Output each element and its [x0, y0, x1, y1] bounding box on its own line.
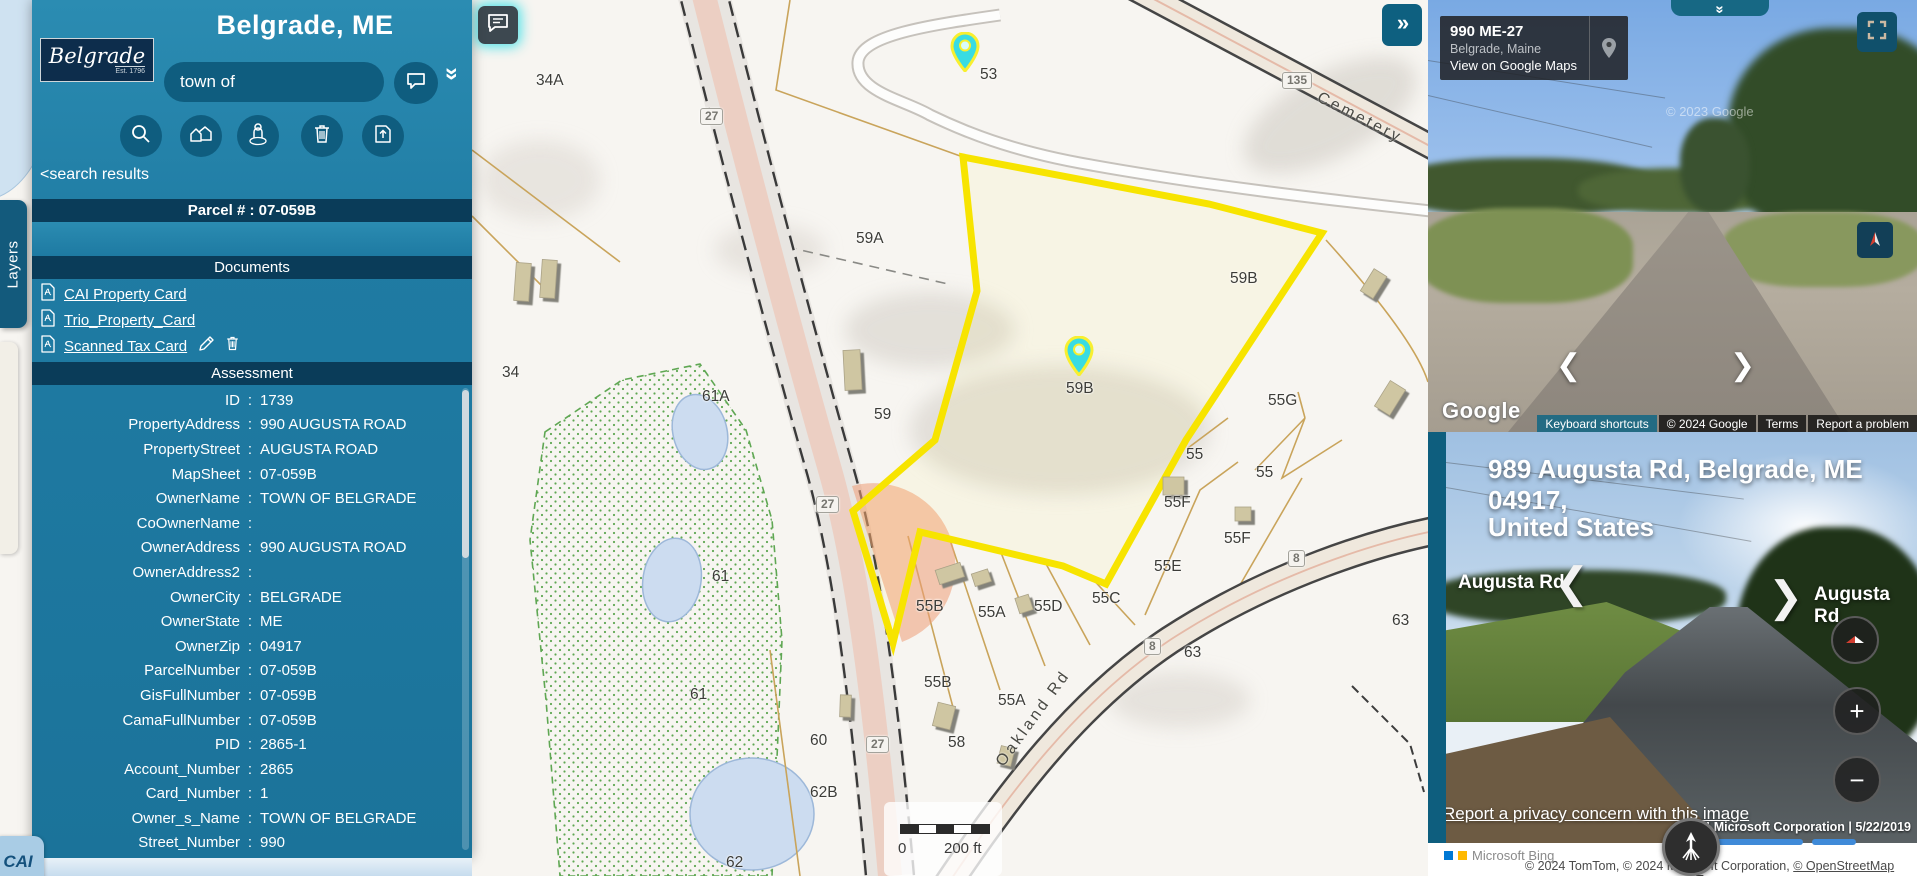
documents-header: Documents: [32, 256, 472, 279]
assessment-table: ID : 1739 PropertyAddress : 990 AUGUSTA …: [32, 388, 460, 855]
assessment-field-label: ID: [32, 392, 240, 409]
terms-link[interactable]: Terms: [1758, 415, 1807, 432]
cai-logo[interactable]: CAI: [0, 836, 44, 876]
abutters-tool-button[interactable]: [237, 115, 279, 157]
assessment-field-value: 07-059B: [260, 662, 460, 679]
assessment-separator: :: [240, 490, 260, 507]
assessment-field-label: GisFullNumber: [32, 687, 240, 704]
assessment-separator: :: [240, 613, 260, 630]
bing-logo-square: [1444, 851, 1453, 860]
assessment-field-label: Owner_s_Name: [32, 810, 240, 827]
assessment-field-value: 07-059B: [260, 712, 460, 729]
assessment-field-label: Account_Number: [32, 761, 240, 778]
parcel-number-label: 55A: [978, 604, 1006, 622]
scale-distance-label: 200 ft: [944, 840, 982, 857]
assessment-field-value: AUGUSTA ROAD: [260, 441, 460, 458]
assessment-field-value: 1: [260, 785, 460, 802]
assessment-field-value: 04917: [260, 638, 460, 655]
parcel-number-label: 59: [874, 406, 891, 424]
scrollbar-segment[interactable]: [1715, 839, 1803, 845]
assessment-separator: :: [240, 441, 260, 458]
sidebar-collapse-button[interactable]: «: [437, 67, 465, 80]
assessment-field-value: 07-059B: [260, 466, 460, 483]
assessment-separator: :: [240, 539, 260, 556]
parcel-number-label: 55D: [1034, 598, 1062, 616]
assessment-field-value: TOWN OF BELGRADE: [260, 810, 460, 827]
assessment-row: OwnerAddress2 :: [32, 560, 460, 585]
route-shield: 27: [866, 736, 889, 753]
document-link[interactable]: Trio_Property_Card: [64, 312, 195, 329]
trash-icon: [312, 123, 332, 150]
double-chevron-down-icon: »: [1712, 5, 1729, 11]
assessment-separator: :: [240, 392, 260, 409]
assessment-row: PID : 2865-1: [32, 732, 460, 757]
street-view-next-arrow[interactable]: ❯: [1730, 348, 1755, 383]
parcel-number-label: 61A: [702, 388, 730, 406]
road-label-left: Augusta Rd: [1458, 572, 1565, 594]
google-copyright: © 2024 Google: [1659, 415, 1756, 432]
chat-icon: [405, 71, 427, 96]
assessment-separator: :: [240, 761, 260, 778]
assessment-field-label: OwnerName: [32, 490, 240, 507]
town-logo-established: Est. 1796: [115, 66, 145, 75]
parcel-number-label: 63: [1392, 612, 1409, 630]
documents-list: CAI Property Card Trio_Property_Card: [32, 281, 472, 359]
assessment-row: OwnerState : ME: [32, 609, 460, 634]
parcel-number-label: 55C: [1092, 590, 1120, 608]
legend-tab[interactable]: [0, 342, 18, 554]
export-file-icon: [373, 123, 393, 150]
parcel-number-label: 53: [980, 66, 997, 84]
document-link[interactable]: Scanned Tax Card: [64, 338, 187, 355]
assessment-field-value: 990: [260, 834, 460, 851]
assessment-row: Account_Number : 2865: [32, 757, 460, 782]
search-results-sidebar: Belgrade Est. 1796 Belgrade, ME «: [32, 0, 472, 858]
route-shield: 8: [1144, 638, 1161, 655]
search-icon: [130, 123, 152, 150]
view-on-google-maps-link[interactable]: View on Google Maps: [1450, 57, 1589, 74]
assessment-separator: :: [240, 712, 260, 729]
street-view-compass-button[interactable]: [1857, 222, 1893, 258]
town-logo: Belgrade Est. 1796: [40, 38, 154, 82]
route-shield: 8: [1288, 550, 1305, 567]
street-view-bottom-bar: Keyboard shortcuts © 2024 Google Terms R…: [1537, 415, 1917, 432]
assessment-separator: :: [240, 564, 260, 581]
houses-icon: [189, 124, 213, 149]
parcel-number-label: 55B: [916, 598, 944, 616]
panel-expand-button[interactable]: »: [1382, 4, 1422, 46]
feedback-button[interactable]: [394, 62, 438, 104]
tree-silhouette: [1728, 28, 1917, 243]
assessment-field-label: CamaFullNumber: [32, 712, 240, 729]
route-shield: 27: [816, 496, 839, 513]
assessment-separator: :: [240, 466, 260, 483]
back-to-search-results-link[interactable]: <search results: [40, 166, 149, 184]
map-pin-icon[interactable]: [1064, 336, 1094, 376]
streetside-next-arrow[interactable]: ❯: [1768, 572, 1803, 621]
assessment-separator: :: [240, 416, 260, 433]
assessment-row: Owner_s_Name : TOWN OF BELGRADE: [32, 806, 460, 831]
pdf-icon: [40, 283, 56, 306]
page-title: Belgrade, ME: [160, 10, 450, 41]
zoom-out-button[interactable]: −: [1833, 756, 1881, 804]
assessment-separator: :: [240, 834, 260, 851]
street-view-prev-arrow[interactable]: ❮: [1556, 348, 1581, 383]
search-box[interactable]: [164, 62, 384, 102]
gis-application: 34A5359A59B59B593461A616155G555555F55F55…: [0, 0, 1917, 876]
report-problem-link[interactable]: Report a problem: [1808, 415, 1917, 432]
parcel-number-label: 55B: [924, 674, 952, 692]
assessment-row: ParcelNumber : 07-059B: [32, 659, 460, 684]
street-view-panel: 990 ME-27 Belgrade, Maine View on Google…: [1428, 0, 1917, 876]
assessment-separator: :: [240, 662, 260, 679]
route-shield: 135: [1282, 72, 1312, 89]
assessment-field-value: 2865-1: [260, 736, 460, 753]
assessment-separator: :: [240, 687, 260, 704]
parcel-number-label: 34: [502, 364, 519, 382]
parcel-number-label: 34A: [536, 72, 564, 90]
parcel-number-label: 63: [1184, 644, 1201, 662]
assessment-field-label: PropertyAddress: [32, 416, 240, 433]
assessment-field-label: Street_Number: [32, 834, 240, 851]
assessment-separator: :: [240, 785, 260, 802]
assessment-field-label: OwnerAddress2: [32, 564, 240, 581]
document-link[interactable]: CAI Property Card: [64, 286, 187, 303]
google-street-view[interactable]: 990 ME-27 Belgrade, Maine View on Google…: [1428, 0, 1917, 432]
town-logo-text: Belgrade: [49, 46, 145, 66]
scrollbar-segment[interactable]: [1812, 839, 1856, 845]
route-shield: 27: [700, 108, 723, 125]
assessment-scrollbar: [462, 388, 469, 850]
streetside-address-line2: United States: [1488, 512, 1654, 543]
parcel-number-label: 62B: [810, 784, 838, 802]
map-scale: 0 200 ft: [884, 802, 1002, 876]
assessment-row: OwnerName : TOWN OF BELGRADE: [32, 486, 460, 511]
parcel-number-label: 59B: [1066, 380, 1094, 398]
assessment-field-value: 990 AUGUSTA ROAD: [260, 416, 460, 433]
assessment-row: CamaFullNumber : 07-059B: [32, 708, 460, 733]
zoom-in-button[interactable]: +: [1833, 687, 1881, 735]
document-row: Scanned Tax Card: [32, 333, 472, 359]
export-tool-button[interactable]: [362, 115, 404, 157]
google-logo: Google: [1442, 398, 1521, 424]
place-pin-icon[interactable]: [1589, 16, 1628, 80]
document-row: CAI Property Card: [32, 281, 472, 307]
parcel-number-label: 55G: [1268, 392, 1297, 410]
assessment-field-label: CoOwnerName: [32, 515, 240, 532]
grass: [1428, 208, 1633, 303]
fullscreen-icon: [1867, 20, 1887, 45]
clear-tool-button[interactable]: [301, 115, 343, 157]
scale-zero-label: 0: [898, 840, 906, 857]
fullscreen-button[interactable]: [1857, 12, 1897, 52]
assessment-field-value: 2865: [260, 761, 460, 778]
assessment-field-label: OwnerZip: [32, 638, 240, 655]
scale-bar: [900, 824, 990, 834]
assessment-field-label: PID: [32, 736, 240, 753]
parcel-number-label: 55: [1256, 464, 1273, 482]
parcel-number-label: 55: [1186, 446, 1203, 464]
pdf-icon: [40, 309, 56, 332]
attribution-text: © 2024 TomTom, © 2024 Microsoft Corporat…: [1525, 859, 1790, 873]
map-pin-icon[interactable]: [950, 32, 980, 72]
keyboard-shortcuts-link[interactable]: Keyboard shortcuts: [1537, 415, 1656, 432]
assessment-field-label: PropertyStreet: [32, 441, 240, 458]
assessment-row: Street_Number : 990: [32, 831, 460, 856]
assessment-field-value: TOWN OF BELGRADE: [260, 490, 460, 507]
sidebar-footer-strip: [0, 858, 472, 876]
speech-bubble-icon: [487, 13, 509, 38]
assessment-separator: :: [240, 589, 260, 606]
openstreetmap-link[interactable]: © OpenStreetMap: [1793, 859, 1894, 873]
street-view-address: 990 ME-27: [1450, 23, 1589, 41]
google-watermark: © 2023 Google: [1666, 104, 1754, 119]
assessment-separator: :: [240, 638, 260, 655]
assessment-field-label: MapSheet: [32, 466, 240, 483]
parcel-number-label: 60: [810, 732, 827, 750]
streetside-prev-arrow[interactable]: ❮: [1554, 558, 1589, 607]
parcel-number-label: 62: [726, 854, 743, 872]
assessment-row: CoOwnerName :: [32, 511, 460, 536]
parcel-number-label: 55F: [1224, 530, 1251, 548]
assessment-row: ID : 1739: [32, 388, 460, 413]
assessment-row: OwnerCity : BELGRADE: [32, 585, 460, 610]
layers-tab-label: Layers: [5, 240, 22, 288]
assessment-field-value: 07-059B: [260, 687, 460, 704]
edit-pencil-icon[interactable]: [197, 335, 215, 358]
person-icon: [248, 122, 268, 151]
assessment-field-label: OwnerCity: [32, 589, 240, 606]
result-row[interactable]: [32, 222, 472, 256]
assessment-row: OwnerZip : 04917: [32, 634, 460, 659]
parcel-number-label: 55A: [998, 692, 1026, 710]
parcel-number-label: 58: [948, 734, 965, 752]
bing-logo-square: [1458, 851, 1467, 860]
pdf-icon: [40, 335, 56, 358]
parcel-number-label: 59A: [856, 230, 884, 248]
search-input[interactable]: [178, 71, 403, 93]
parcels-tool-button[interactable]: [180, 115, 222, 157]
assessment-separator: :: [240, 810, 260, 827]
parcel-number-label: 61: [712, 568, 729, 586]
street-view-collapse-button[interactable]: »: [1671, 0, 1769, 16]
assessment-field-label: Card_Number: [32, 785, 240, 802]
parcel-number-label: 59B: [1230, 270, 1258, 288]
parcel-number-label: 55F: [1164, 494, 1191, 512]
assessment-field-value: 990 AUGUSTA ROAD: [260, 539, 460, 556]
assessment-row: GisFullNumber : 07-059B: [32, 683, 460, 708]
parcel-number-label: 55E: [1154, 558, 1182, 576]
assessment-field-value: BELGRADE: [260, 589, 460, 606]
assessment-row: PropertyAddress : 990 AUGUSTA ROAD: [32, 413, 460, 438]
streetside-locate-compass[interactable]: [1662, 818, 1720, 876]
parcel-number-label: 61: [690, 686, 707, 704]
assessment-row: PropertyStreet : AUGUSTA ROAD: [32, 437, 460, 462]
assessment-header: Assessment: [32, 362, 472, 385]
assessment-row: OwnerAddress : 990 AUGUSTA ROAD: [32, 536, 460, 561]
layers-tab[interactable]: Layers: [0, 200, 27, 328]
assessment-row: Card_Number : 1: [32, 782, 460, 807]
bing-streetside-view[interactable]: 989 Augusta Rd, Belgrade, ME 04917, Unit…: [1446, 432, 1917, 843]
tree-silhouette: [1680, 118, 1750, 213]
parcel-header: Parcel # : 07-059B: [32, 199, 472, 222]
assessment-field-label: ParcelNumber: [32, 662, 240, 679]
assessment-field-value: 1739: [260, 392, 460, 409]
assessment-field-value: ME: [260, 613, 460, 630]
map-comment-button[interactable]: [478, 6, 518, 44]
scrollbar-thumb[interactable]: [462, 390, 469, 558]
document-row: Trio_Property_Card: [32, 307, 472, 333]
delete-document-icon[interactable]: [225, 335, 240, 357]
street-view-city: Belgrade, Maine: [1450, 41, 1589, 57]
assessment-separator: :: [240, 736, 260, 753]
assessment-field-label: OwnerState: [32, 613, 240, 630]
search-tool-button[interactable]: [120, 115, 162, 157]
assessment-separator: :: [240, 515, 260, 532]
street-view-address-card: 990 ME-27 Belgrade, Maine View on Google…: [1440, 16, 1628, 80]
streetside-address-line1: 989 Augusta Rd, Belgrade, ME 04917,: [1488, 454, 1917, 516]
assessment-field-label: OwnerAddress: [32, 539, 240, 556]
assessment-row: MapSheet : 07-059B: [32, 462, 460, 487]
streetside-compass-button[interactable]: [1831, 616, 1879, 664]
